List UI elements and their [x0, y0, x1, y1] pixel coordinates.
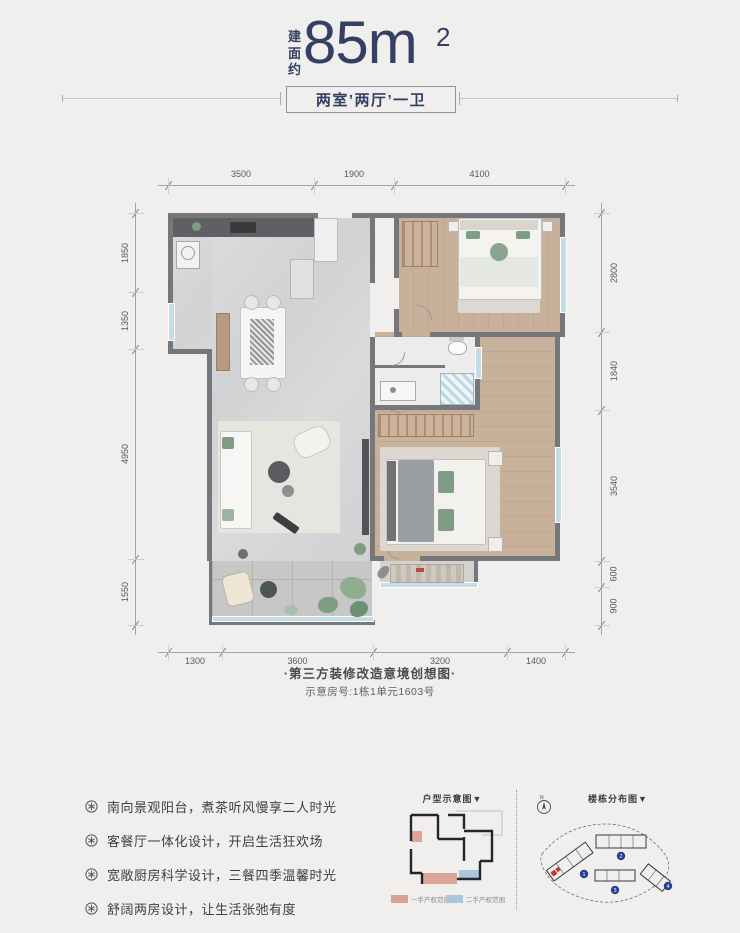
- feature-list: 南向景观阳台，煮茶听风慢享二人时光 客餐厅一体化设计，开启生活狂欢场 宽敞厨房科…: [85, 797, 337, 933]
- kitchen-cabinet: [314, 218, 338, 262]
- area-value: 85m: [303, 8, 417, 77]
- building-2-number: 2: [619, 854, 622, 860]
- toilet-tank: [449, 337, 464, 341]
- bath-vanity: [380, 381, 416, 401]
- feature-text: 舒阔两房设计，让生活张弛有度: [107, 899, 296, 918]
- dim-ext: [594, 625, 610, 626]
- dim-ext: [373, 645, 374, 660]
- wall-master-bottom-a: [394, 332, 402, 337]
- site-map-title: 楼栋分布图▼: [558, 792, 678, 805]
- building-3: [595, 870, 635, 881]
- sofa-pillow: [222, 509, 234, 521]
- area-prefix: 建面约: [288, 29, 303, 79]
- subtitle-rule-left: [62, 98, 280, 99]
- balcony-plant: [340, 577, 366, 599]
- tv-cabinet: [362, 439, 369, 535]
- feature-item: 客餐厅一体化设计，开启生活狂欢场: [85, 831, 337, 850]
- dim-ext: [314, 178, 315, 194]
- balcony-plant: [284, 605, 298, 615]
- wall-bath-bottom: [375, 405, 480, 410]
- feature-text: 南向景观阳台，煮茶听风慢享二人时光: [107, 797, 337, 816]
- dim-ext: [507, 645, 508, 660]
- subtitle-rule-right: [460, 98, 678, 99]
- circled-asterisk-icon: [85, 834, 98, 847]
- dim-ext: [594, 332, 610, 333]
- wall-master-left-upper: [394, 218, 399, 278]
- bedroom2-blanket: [398, 460, 434, 542]
- balcony-railing: [212, 616, 374, 622]
- bedroom2-pillow: [438, 509, 454, 531]
- side-table: [282, 485, 294, 497]
- dim-ext: [594, 213, 610, 214]
- wall-bedroom2-bottom-b: [370, 556, 384, 561]
- balcony-table: [260, 581, 277, 598]
- bedroom2-window: [555, 447, 562, 523]
- shower: [440, 373, 474, 405]
- kitchen-plant: [192, 222, 201, 231]
- dim-left-labels: 1850 1350 4950 1550: [118, 213, 132, 625]
- dim-ext: [128, 292, 144, 293]
- site-map: 1 2 3 4: [528, 806, 680, 912]
- wall-bath-divider: [375, 365, 445, 368]
- circled-asterisk-icon: [85, 800, 98, 813]
- dim-ext: [168, 178, 169, 194]
- feature-item: 南向景观阳台，煮茶听风慢享二人时光: [85, 797, 337, 816]
- dining-chair: [244, 295, 259, 310]
- nightstand: [448, 221, 459, 232]
- layout-label-box: 两室’两厅’一卫: [286, 86, 456, 113]
- table-runner: [250, 319, 274, 365]
- nightstand: [542, 221, 553, 232]
- area-superscript: 2: [436, 22, 450, 53]
- wall-corridor-upper: [370, 218, 375, 283]
- dining-chair: [266, 295, 281, 310]
- unit-schematic: [398, 805, 508, 889]
- laundry-accent: [416, 568, 424, 572]
- master-pillow: [516, 231, 530, 239]
- dim-top-line: [158, 185, 575, 186]
- master-headboard: [460, 220, 538, 230]
- legend-swatch-pink: [391, 895, 408, 903]
- plan-room-number: 示意房号:1栋1单元1603号: [0, 684, 740, 699]
- bedroom2-wardrobe: [378, 414, 474, 437]
- wall-master-left-lower: [394, 309, 399, 332]
- dim-ext: [565, 178, 566, 194]
- feature-text: 宽敞厨房科学设计，三餐四季温馨时光: [107, 865, 337, 884]
- toilet: [448, 341, 467, 355]
- feature-text: 客餐厅一体化设计，开启生活狂欢场: [107, 831, 323, 850]
- nightstand: [488, 537, 503, 552]
- master-pillow: [466, 231, 480, 239]
- subtitle-tick-right-end: [677, 95, 678, 102]
- dim-left-line: [135, 203, 136, 635]
- dim-right-labels: 2800 1840 3540 600 900: [607, 213, 621, 625]
- entry-window: [168, 303, 175, 341]
- dim-ext: [394, 178, 395, 194]
- dim-top-labels: 3500 1900 4100: [168, 169, 565, 179]
- bedroom2-headboard: [387, 461, 396, 541]
- legend-swatch-blue: [446, 895, 463, 903]
- dim-ext: [222, 645, 223, 660]
- building-4-number: 4: [666, 884, 669, 890]
- stove: [230, 222, 256, 233]
- wall-corridor-lower: [370, 337, 375, 561]
- coffee-table: [268, 461, 290, 483]
- living-plant: [354, 543, 366, 555]
- unit-highlight-blue: [459, 870, 479, 879]
- master-wardrobe: [402, 221, 438, 267]
- master-window: [560, 237, 567, 313]
- wall-entry-step: [168, 349, 212, 354]
- plan-disclaimer: ·第三方装修改造意境创想图·: [0, 663, 740, 682]
- dim-ext: [128, 559, 144, 560]
- sink: [390, 387, 396, 393]
- wall-bedroom2-bottom: [420, 556, 560, 561]
- dim-ext: [128, 349, 144, 350]
- section-divider: [516, 790, 517, 910]
- legend-item-pink: 一手产权范围: [391, 894, 450, 904]
- dim-ext: [594, 561, 610, 562]
- sideboard: [216, 313, 230, 371]
- dining-chair: [266, 377, 281, 392]
- legend-label-blue: 二手产权范围: [466, 894, 505, 904]
- dim-ext: [128, 213, 144, 214]
- legend-label-pink: 一手产权范围: [411, 894, 450, 904]
- fridge: [290, 259, 314, 299]
- floor-plan: [168, 213, 565, 625]
- unit-schematic-title: 户型示意图▼: [395, 792, 510, 805]
- dim-ext: [594, 410, 610, 411]
- wall-living-left: [207, 349, 212, 561]
- feature-item: 宽敞厨房科学设计，三餐四季温馨时光: [85, 865, 337, 884]
- circled-asterisk-icon: [85, 868, 98, 881]
- subtitle-tick-right-box: [459, 92, 460, 105]
- layout-label: 两室’两厅’一卫: [316, 89, 426, 110]
- circled-asterisk-icon: [85, 902, 98, 915]
- dining-chair: [244, 377, 259, 392]
- nightstand: [488, 451, 503, 466]
- dim-right-line: [601, 203, 602, 635]
- master-cushion: [490, 243, 508, 261]
- bedroom2-pillow: [438, 471, 454, 493]
- subtitle-tick-left-end: [62, 95, 63, 102]
- building-3-number: 3: [613, 888, 616, 894]
- laundry-rug: [390, 564, 464, 583]
- washing-machine-door: [181, 246, 195, 260]
- building-2: [596, 835, 646, 848]
- building-1-number: 1: [582, 872, 585, 878]
- dim-ext: [594, 587, 610, 588]
- unit-highlight-pink-balcony: [423, 873, 457, 884]
- sofa-pillow: [222, 437, 234, 449]
- master-blanket: [460, 257, 538, 287]
- subtitle-tick-left-box: [280, 92, 281, 105]
- unit-highlight-pink-small: [411, 831, 422, 842]
- dim-ext: [168, 645, 169, 660]
- bathroom-window: [475, 347, 482, 379]
- dim-ext: [128, 625, 144, 626]
- floor-lamp: [238, 549, 248, 559]
- dim-ext: [565, 645, 566, 660]
- feature-item: 舒阔两房设计，让生活张弛有度: [85, 899, 337, 918]
- legend-item-blue: 二手产权范围: [446, 894, 505, 904]
